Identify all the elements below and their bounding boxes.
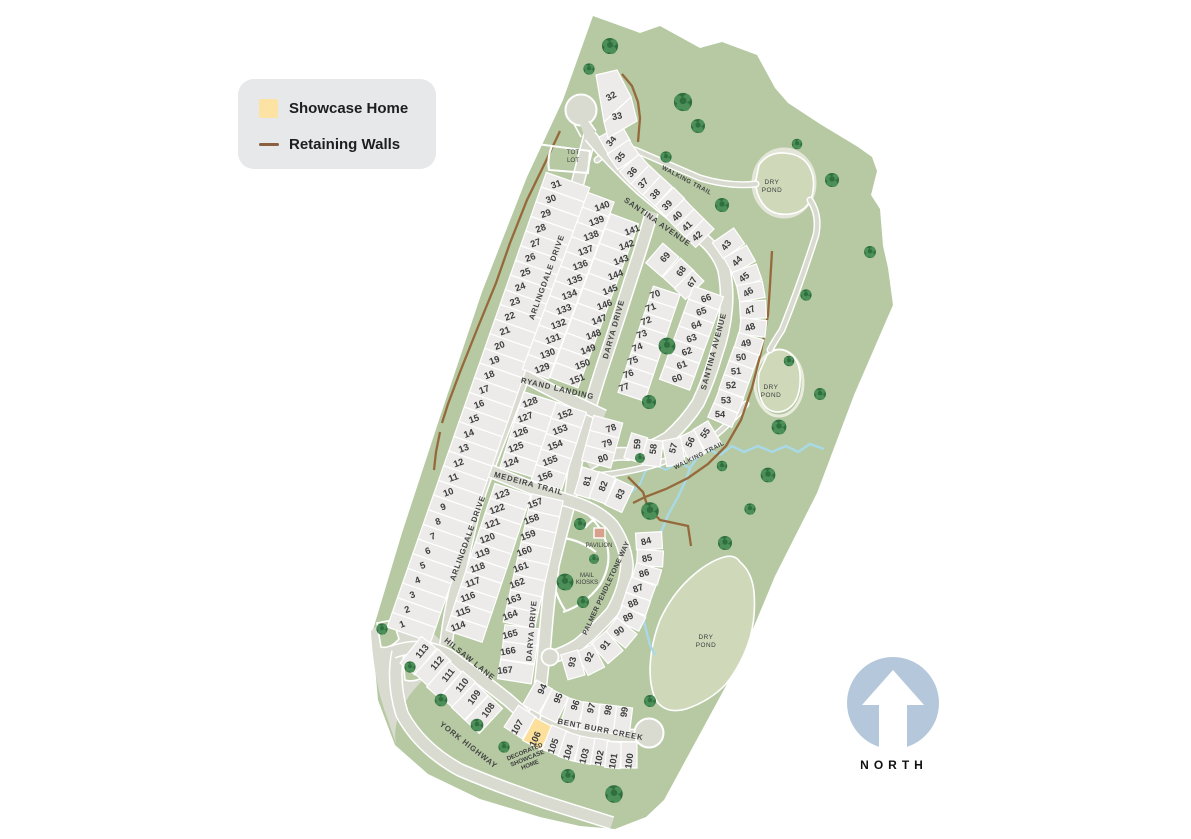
svg-text:DRY: DRY (765, 179, 780, 186)
svg-text:KIOSKS: KIOSKS (576, 580, 598, 586)
svg-text:POND: POND (762, 187, 782, 194)
svg-text:100: 100 (623, 753, 635, 770)
svg-text:49: 49 (740, 337, 752, 349)
svg-text:50: 50 (735, 352, 747, 363)
svg-text:58: 58 (648, 443, 659, 454)
svg-text:POND: POND (696, 642, 716, 649)
svg-text:52: 52 (725, 380, 736, 391)
svg-text:DRY: DRY (764, 384, 779, 391)
svg-text:PAVILION: PAVILION (586, 543, 613, 549)
svg-text:TOT: TOT (567, 149, 579, 156)
svg-text:54: 54 (715, 409, 727, 419)
svg-text:85: 85 (641, 552, 653, 564)
svg-text:99: 99 (618, 706, 630, 718)
svg-text:51: 51 (730, 366, 741, 377)
svg-text:MAIL: MAIL (580, 573, 595, 579)
svg-text:167: 167 (497, 665, 513, 676)
svg-text:33: 33 (611, 110, 623, 122)
svg-text:53: 53 (721, 395, 732, 405)
svg-text:59: 59 (632, 439, 642, 450)
svg-text:93: 93 (566, 656, 578, 668)
svg-text:LOT: LOT (567, 157, 579, 164)
svg-text:81: 81 (581, 475, 593, 487)
svg-text:POND: POND (761, 392, 781, 399)
svg-text:DRY: DRY (699, 634, 714, 641)
